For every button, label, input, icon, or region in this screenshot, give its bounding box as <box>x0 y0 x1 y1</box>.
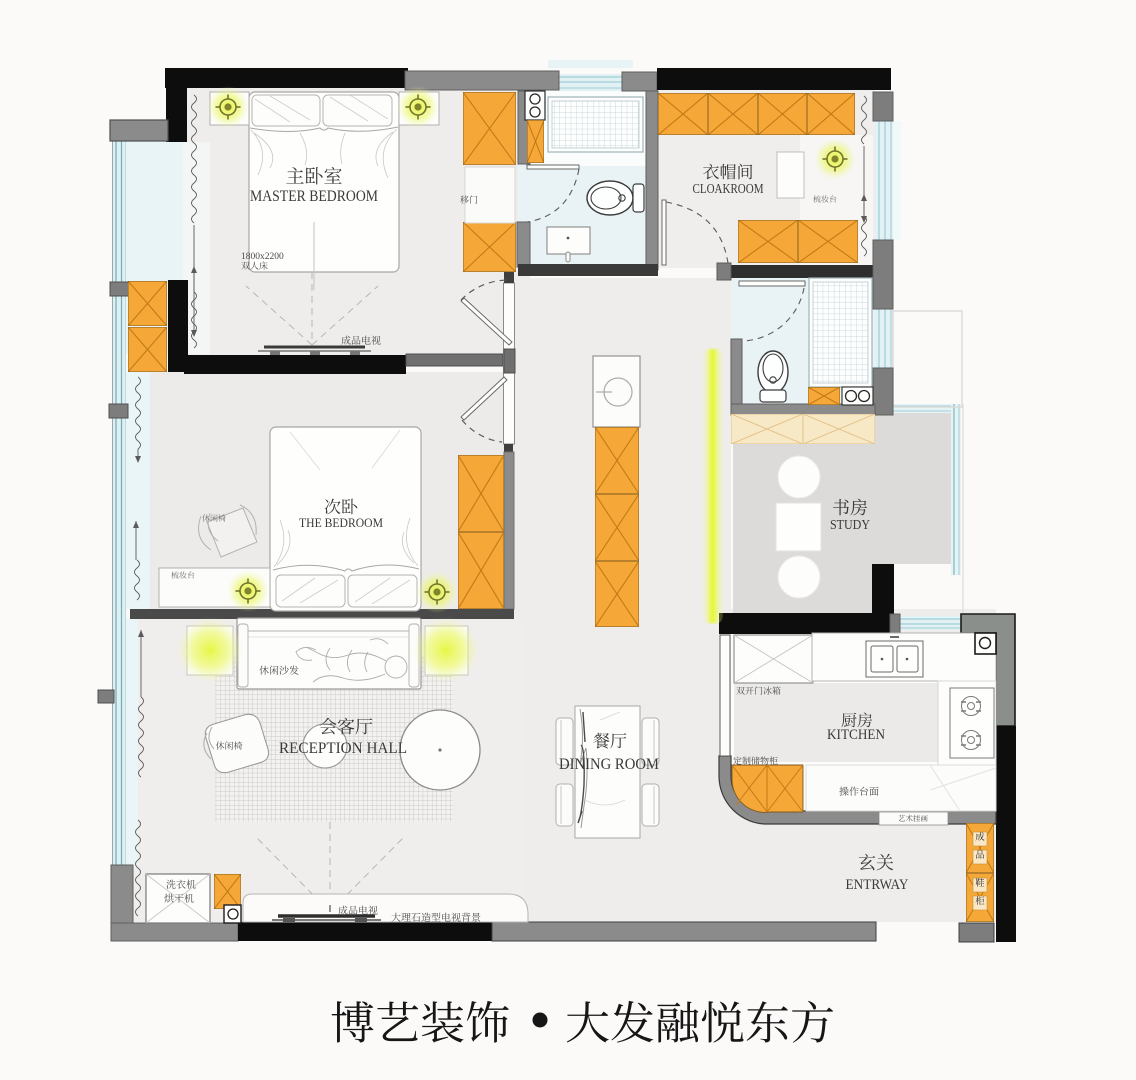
svg-text:1800x2200: 1800x2200 <box>241 252 284 262</box>
svg-text:CLOAKROOM: CLOAKROOM <box>693 181 764 196</box>
svg-text:THE BEDROOM: THE BEDROOM <box>299 515 383 530</box>
svg-text:MASTER BEDROOM: MASTER BEDROOM <box>250 188 378 205</box>
svg-text:RECEPTION HALL: RECEPTION HALL <box>279 740 407 757</box>
svg-text:STUDY: STUDY <box>830 517 870 532</box>
svg-text:KITCHEN: KITCHEN <box>827 727 885 743</box>
svg-text:ENTRWAY: ENTRWAY <box>846 877 909 893</box>
svg-text:DINING ROOM: DINING ROOM <box>559 756 659 773</box>
